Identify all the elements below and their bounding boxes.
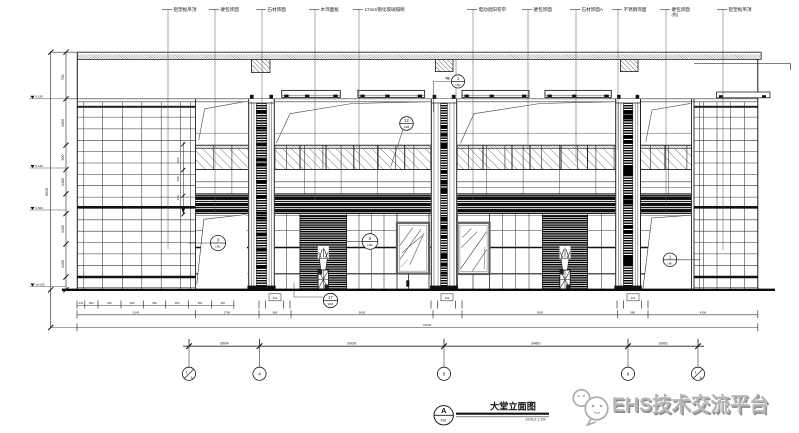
svg-text:1960: 1960 — [61, 119, 65, 127]
svg-text:5590: 5590 — [537, 310, 544, 314]
svg-text:1480: 1480 — [61, 178, 65, 186]
svg-text:大堂立面图: 大堂立面图 — [490, 401, 536, 412]
svg-text:3004: 3004 — [220, 340, 230, 345]
svg-text:5: 5 — [443, 372, 446, 377]
svg-text:900: 900 — [61, 155, 65, 161]
svg-text:202: 202 — [445, 296, 450, 300]
svg-text:202: 202 — [631, 296, 636, 300]
svg-text:750: 750 — [61, 75, 65, 81]
svg-text:480: 480 — [176, 176, 180, 181]
svg-text:17mm钢化玻璃隔断: 17mm钢化玻璃隔断 — [365, 6, 406, 13]
svg-text:12: 12 — [404, 118, 409, 123]
svg-text:6: 6 — [700, 376, 702, 380]
svg-text:硬包饰面: 硬包饰面 — [221, 6, 240, 13]
svg-text:5140: 5140 — [133, 310, 140, 314]
svg-text:3.600: 3.600 — [36, 206, 44, 210]
svg-text:960: 960 — [130, 301, 135, 305]
svg-text:5630: 5630 — [359, 310, 366, 314]
svg-text:石材饰面: 石材饰面 — [268, 6, 287, 13]
svg-text:9.150: 9.150 — [36, 95, 44, 99]
svg-text:木饰面板: 木饰面板 — [321, 6, 340, 13]
svg-text:不锈钢饰面: 不锈钢饰面 — [624, 6, 647, 13]
svg-text:±0.000: ±0.000 — [36, 282, 45, 286]
svg-text:W04: W04 — [328, 302, 334, 306]
svg-text:4: 4 — [258, 372, 261, 377]
svg-text:6: 6 — [627, 372, 630, 377]
svg-text:硬包饰面: 硬包饰面 — [534, 6, 553, 13]
svg-text:24945: 24945 — [423, 323, 432, 327]
svg-text:980: 980 — [630, 310, 635, 314]
svg-text:240: 240 — [176, 195, 180, 200]
svg-text:850: 850 — [89, 301, 94, 305]
svg-text:3: 3 — [191, 376, 193, 380]
svg-text:1300: 1300 — [61, 225, 65, 233]
svg-text:8460: 8460 — [532, 340, 542, 345]
svg-text:240: 240 — [79, 301, 84, 305]
svg-text:986: 986 — [273, 310, 278, 314]
svg-text:A: A — [441, 406, 446, 415]
svg-text:9015: 9015 — [45, 188, 49, 196]
svg-text:电动遮阳卷帘: 电动遮阳卷帘 — [479, 6, 507, 13]
svg-text:950: 950 — [198, 301, 203, 305]
svg-text:YB: YB — [445, 77, 450, 81]
svg-text:F01: F01 — [441, 419, 447, 423]
svg-text:EHS技术交流平台: EHS技术交流平台 — [612, 393, 769, 417]
svg-text:1: 1 — [186, 371, 188, 375]
svg-text:900: 900 — [175, 301, 180, 305]
svg-text:900: 900 — [107, 301, 112, 305]
svg-text:石材饰面A: 石材饰面A — [582, 6, 604, 13]
svg-text:900: 900 — [176, 157, 180, 162]
svg-text:铝塑板吊顶: 铝塑板吊顶 — [729, 6, 752, 13]
svg-text:LB3: LB3 — [456, 83, 461, 87]
svg-text:2790: 2790 — [224, 310, 231, 314]
svg-text:(啦): (啦) — [672, 11, 679, 17]
svg-text:LM2: LM2 — [367, 243, 373, 247]
svg-text:SCALE 1:100: SCALE 1:100 — [525, 418, 546, 422]
svg-text:5.150: 5.150 — [36, 164, 44, 168]
svg-text:铝塑板吊顶: 铝塑板吊顶 — [174, 6, 197, 13]
svg-text:690: 690 — [152, 301, 157, 305]
svg-text:17: 17 — [328, 295, 333, 300]
svg-text:LM6: LM6 — [404, 125, 410, 129]
svg-text:940: 940 — [220, 301, 225, 305]
svg-text:9000: 9000 — [347, 340, 357, 345]
svg-text:1: 1 — [695, 371, 697, 375]
svg-text:4390: 4390 — [700, 310, 707, 314]
svg-text:3100: 3100 — [61, 260, 65, 268]
svg-text:LM1: LM1 — [667, 261, 673, 265]
svg-text:202: 202 — [273, 296, 278, 300]
svg-text:3006: 3006 — [659, 340, 669, 345]
svg-text:LM1: LM1 — [215, 245, 221, 249]
